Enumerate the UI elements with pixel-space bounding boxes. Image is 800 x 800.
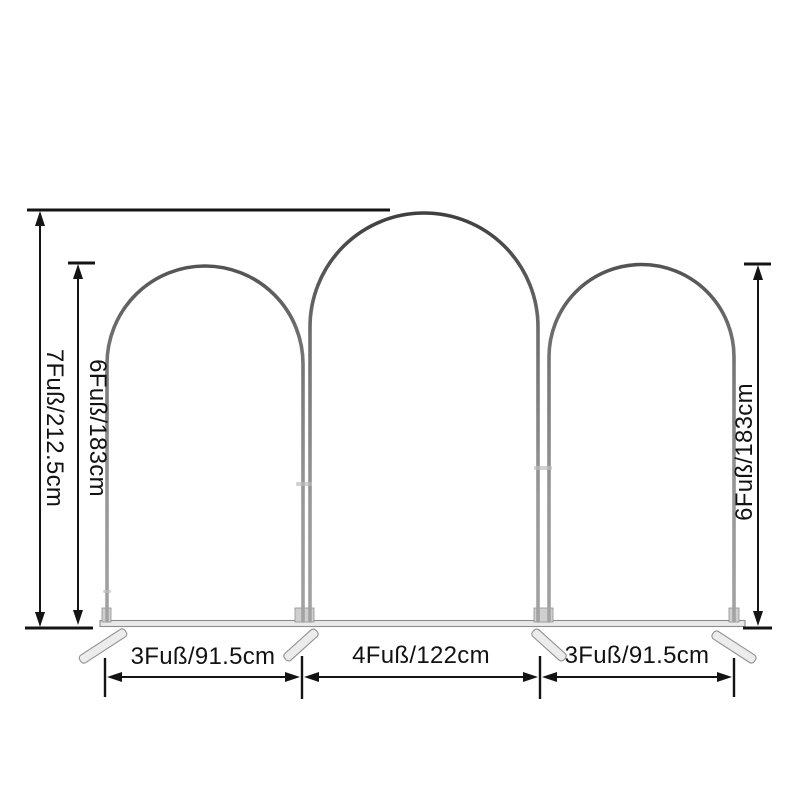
tube-joint [296,482,312,486]
tube-joint [103,590,111,593]
right-center-foot [530,628,567,663]
right-arch-width-label: 3Fuß/91.5cm [565,644,710,668]
middle-arch-width-label: 4Fuß/122cm [352,644,490,668]
middle-arch-frame [310,213,538,621]
left-arch-height-label: 6Fuß/183cm [85,359,109,497]
base-crossbar [100,621,745,627]
left-arch-width-label: 3Fuß/91.5cm [131,645,276,669]
arch-stand-illustration [0,0,800,800]
left-arch-frame [107,266,303,621]
right-arch-height-label: 6Fuß/183cm [733,383,757,521]
arch-stand-dimension-diagram: 7Fuß/212.5cm 6Fuß/183cm 6Fuß/183cm 3Fuß/… [0,0,800,800]
tube-joint [534,466,552,470]
frame-group [78,213,758,664]
overall-height-label: 7Fuß/212.5cm [42,349,66,507]
left-outer-foot [78,628,128,665]
right-arch-frame [549,265,734,621]
